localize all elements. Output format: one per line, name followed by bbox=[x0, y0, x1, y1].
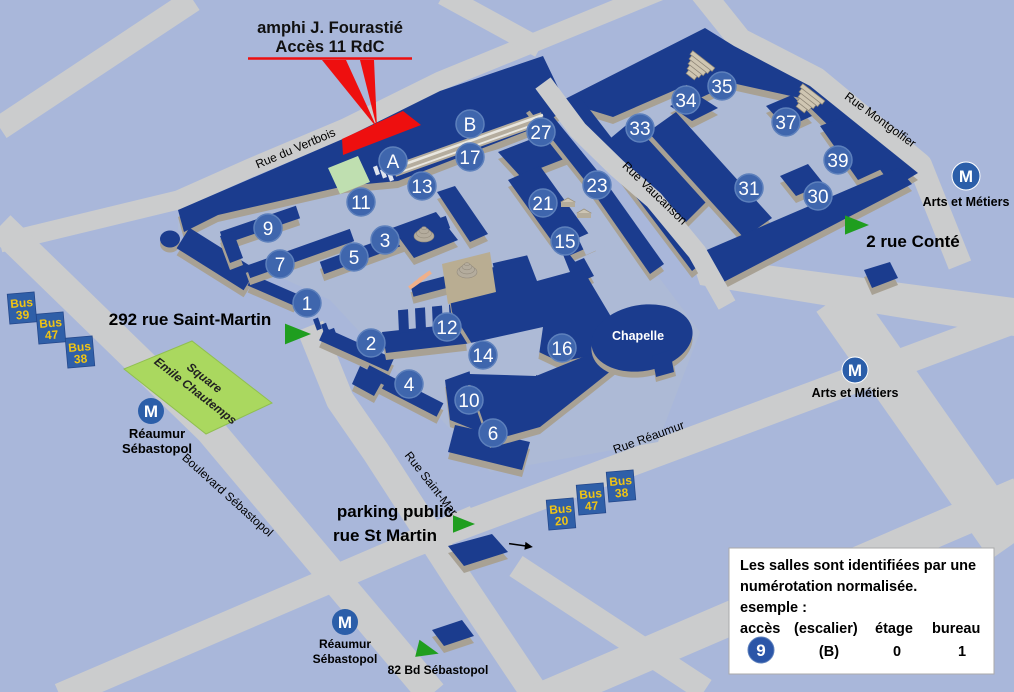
svg-text:9: 9 bbox=[756, 641, 765, 660]
svg-text:30: 30 bbox=[807, 187, 828, 208]
svg-text:39: 39 bbox=[15, 307, 30, 322]
svg-text:2: 2 bbox=[366, 334, 377, 355]
svg-text:Réaumur: Réaumur bbox=[129, 426, 185, 441]
svg-text:15: 15 bbox=[554, 232, 575, 253]
svg-text:39: 39 bbox=[827, 151, 848, 172]
svg-text:amphi J. Fourastié: amphi J. Fourastié bbox=[257, 19, 403, 37]
svg-text:B: B bbox=[464, 115, 477, 136]
svg-text:9: 9 bbox=[263, 219, 274, 240]
svg-text:Sébastopol: Sébastopol bbox=[313, 652, 378, 666]
svg-text:Les salles sont identifiées pa: Les salles sont identifiées par une bbox=[740, 558, 976, 574]
svg-text:2 rue Conté: 2 rue Conté bbox=[866, 232, 960, 251]
svg-text:M: M bbox=[848, 361, 862, 380]
svg-text:38: 38 bbox=[73, 351, 88, 366]
svg-text:35: 35 bbox=[711, 77, 732, 98]
svg-text:rue St Martin: rue St Martin bbox=[333, 526, 437, 545]
svg-text:11: 11 bbox=[351, 193, 371, 214]
svg-text:1: 1 bbox=[302, 294, 313, 315]
svg-text:10: 10 bbox=[458, 391, 479, 412]
svg-text:numérotation normalisée.: numérotation normalisée. bbox=[740, 579, 917, 595]
svg-text:(B): (B) bbox=[819, 644, 839, 660]
svg-text:accès: accès bbox=[740, 621, 780, 637]
svg-text:Réaumur: Réaumur bbox=[319, 637, 371, 651]
svg-text:A: A bbox=[387, 152, 400, 173]
svg-text:47: 47 bbox=[584, 498, 599, 513]
svg-text:6: 6 bbox=[488, 424, 499, 445]
svg-text:5: 5 bbox=[349, 248, 360, 269]
svg-text:20: 20 bbox=[554, 513, 569, 528]
svg-text:16: 16 bbox=[551, 339, 572, 360]
svg-text:Arts et Métiers: Arts et Métiers bbox=[923, 195, 1010, 209]
svg-text:parking public: parking public bbox=[337, 502, 453, 521]
svg-text:Accès 11 RdC: Accès 11 RdC bbox=[275, 38, 384, 56]
svg-text:38: 38 bbox=[614, 485, 629, 500]
svg-text:17: 17 bbox=[459, 148, 480, 169]
svg-text:12: 12 bbox=[436, 318, 457, 339]
svg-text:7: 7 bbox=[275, 255, 286, 276]
svg-text:4: 4 bbox=[404, 375, 415, 396]
svg-text:34: 34 bbox=[675, 91, 697, 112]
svg-text:14: 14 bbox=[472, 346, 494, 367]
svg-text:21: 21 bbox=[532, 194, 553, 215]
svg-text:(escalier): (escalier) bbox=[794, 621, 858, 637]
svg-text:M: M bbox=[144, 402, 158, 421]
svg-text:M: M bbox=[959, 167, 973, 186]
svg-text:Sébastopol: Sébastopol bbox=[122, 441, 192, 456]
svg-text:M: M bbox=[338, 613, 352, 632]
svg-text:bureau: bureau bbox=[932, 621, 980, 637]
svg-text:47: 47 bbox=[44, 327, 59, 342]
svg-text:étage: étage bbox=[875, 621, 913, 637]
svg-text:13: 13 bbox=[411, 177, 432, 198]
svg-text:82 Bd Sébastopol: 82 Bd Sébastopol bbox=[388, 663, 489, 677]
svg-text:0: 0 bbox=[893, 644, 901, 660]
svg-text:esemple :: esemple : bbox=[740, 600, 807, 616]
svg-text:23: 23 bbox=[586, 176, 607, 197]
svg-text:37: 37 bbox=[775, 113, 796, 134]
svg-text:292 rue Saint-Martin: 292 rue Saint-Martin bbox=[109, 310, 272, 329]
svg-text:Chapelle: Chapelle bbox=[612, 329, 664, 343]
svg-text:31: 31 bbox=[738, 179, 759, 200]
svg-text:3: 3 bbox=[380, 231, 391, 252]
svg-text:Arts et Métiers: Arts et Métiers bbox=[812, 386, 899, 400]
svg-text:27: 27 bbox=[530, 123, 551, 144]
svg-text:1: 1 bbox=[958, 644, 966, 660]
svg-text:33: 33 bbox=[629, 119, 650, 140]
